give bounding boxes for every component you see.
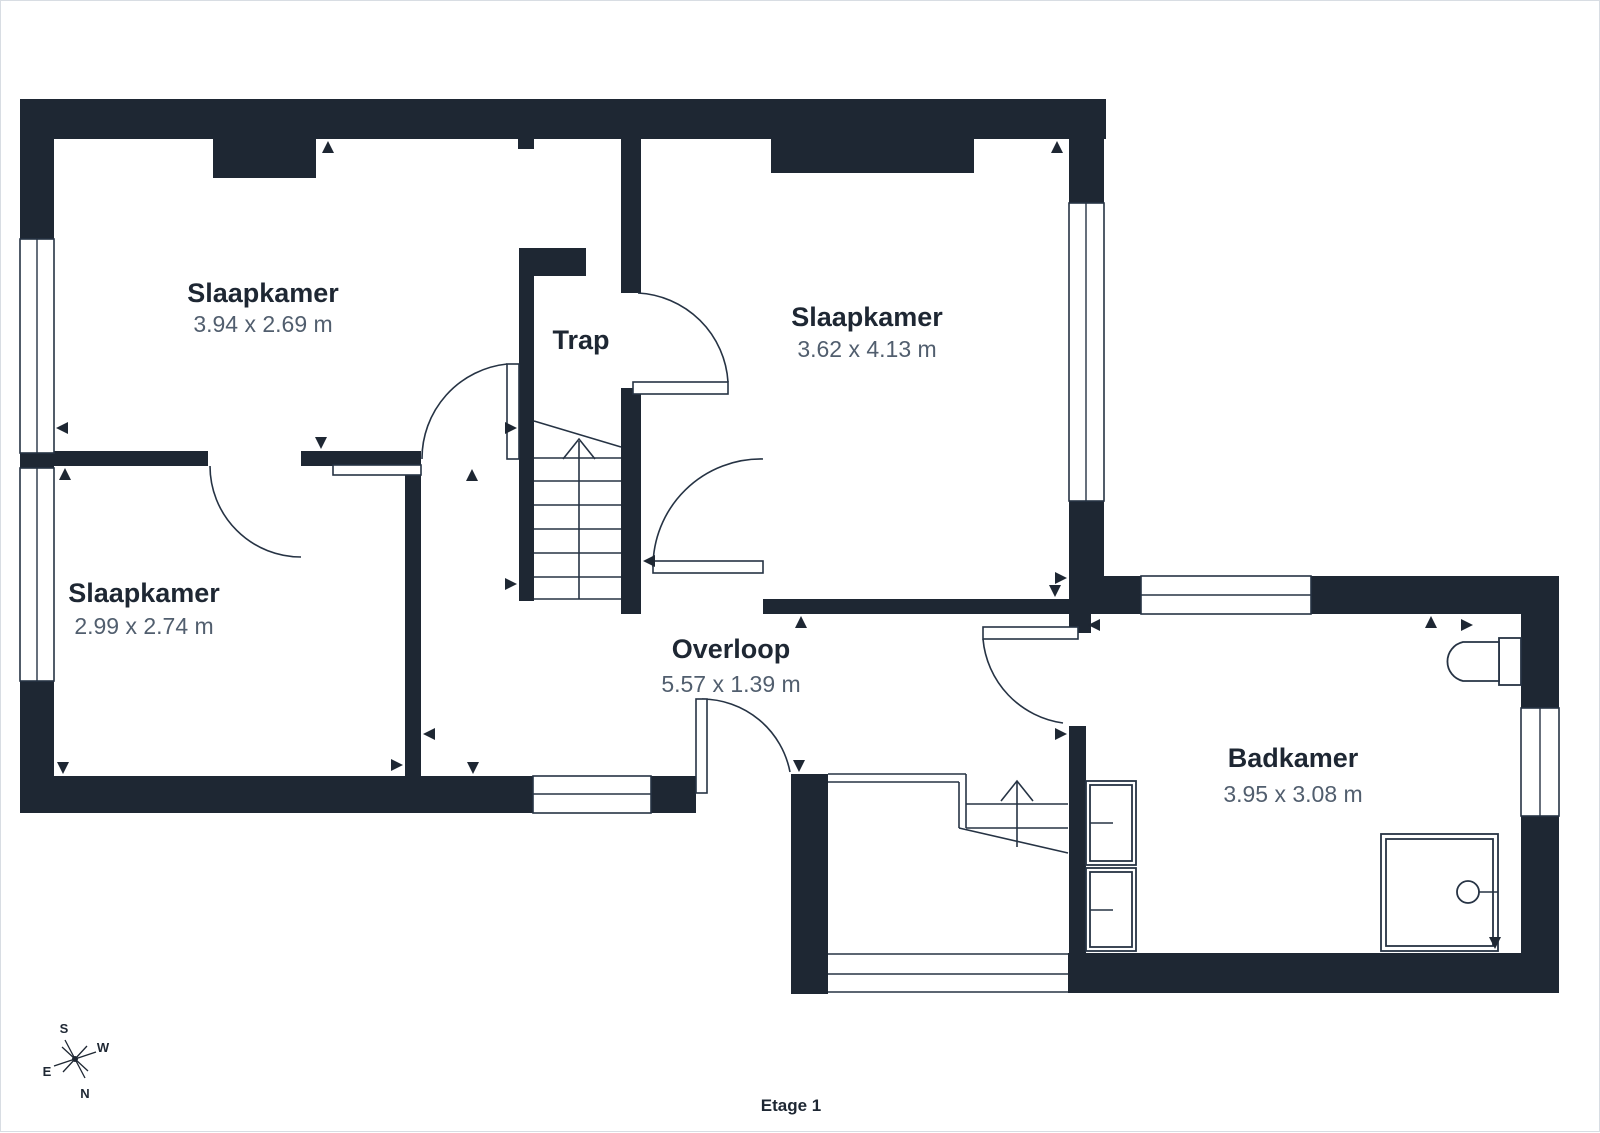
floorplan-page: Slaapkamer 3.94 x 2.69 m Slaapkamer 3.62… xyxy=(0,0,1600,1132)
window-badkamer-east xyxy=(1521,708,1559,816)
room-label-overloop: Overloop xyxy=(672,634,791,664)
compass-north: N xyxy=(80,1086,89,1101)
floorplan-svg: Slaapkamer 3.94 x 2.69 m Slaapkamer 3.62… xyxy=(1,1,1600,1133)
door-trap xyxy=(633,293,728,394)
room-dims-slaapkamer-ne: 3.62 x 4.13 m xyxy=(797,336,936,362)
door-sw-bedroom xyxy=(210,465,421,557)
window-left-upper xyxy=(20,239,54,453)
vanity-unit-icon xyxy=(1086,781,1136,951)
toilet-icon xyxy=(1447,638,1521,685)
door-ne-bedroom xyxy=(653,459,763,573)
compass-south: S xyxy=(60,1021,69,1036)
room-label-slaapkamer-nw: Slaapkamer xyxy=(187,278,339,308)
shower-icon xyxy=(1381,834,1498,951)
room-label-trap: Trap xyxy=(552,325,609,355)
walls xyxy=(20,99,1559,994)
stairs-upper xyxy=(534,421,621,599)
window-ne-bedroom-east xyxy=(1069,203,1104,501)
room-dims-overloop: 5.57 x 1.39 m xyxy=(661,671,800,697)
room-label-slaapkamer-sw: Slaapkamer xyxy=(68,578,220,608)
room-label-slaapkamer-ne: Slaapkamer xyxy=(791,302,943,332)
room-dims-slaapkamer-nw: 3.94 x 2.69 m xyxy=(193,311,332,337)
window-bottom-west xyxy=(533,776,651,813)
door-nw-bedroom xyxy=(422,364,519,459)
room-dims-slaapkamer-sw: 2.99 x 2.74 m xyxy=(74,613,213,639)
compass-east: E xyxy=(43,1064,52,1079)
compass-icon: S W E N xyxy=(43,1021,110,1101)
stairs-lower xyxy=(828,774,1068,992)
window-badkamer-north xyxy=(1141,576,1311,614)
doors xyxy=(210,293,1078,793)
dimension-arrows xyxy=(56,141,1501,949)
room-label-badkamer: Badkamer xyxy=(1228,743,1359,773)
window-left-lower xyxy=(20,468,54,681)
floor-title: Etage 1 xyxy=(761,1096,821,1115)
room-dims-badkamer: 3.95 x 3.08 m xyxy=(1223,781,1362,807)
door-overloop-stairwell xyxy=(696,699,790,793)
door-badkamer xyxy=(983,627,1078,723)
compass-west: W xyxy=(97,1040,110,1055)
